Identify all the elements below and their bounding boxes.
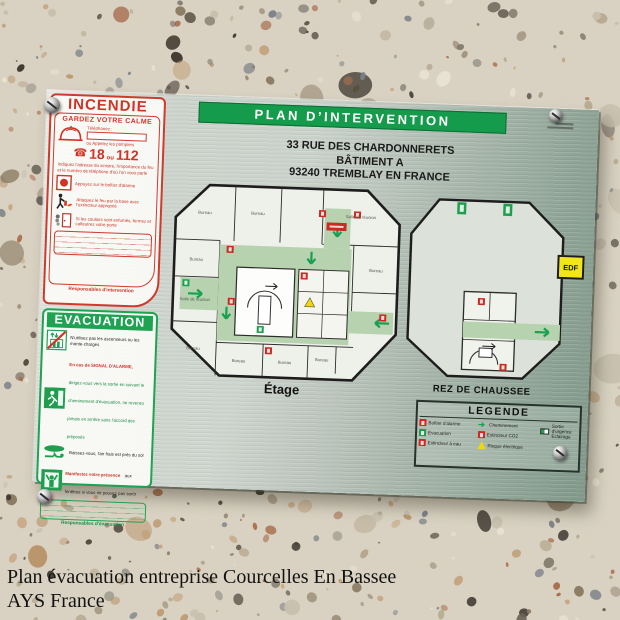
svg-text:Bureau: Bureau	[369, 268, 383, 274]
emergency-light-icon	[541, 428, 550, 434]
phone-icon: ☎	[73, 148, 87, 159]
legend-item-alarm: Boîtier d'alarme	[419, 419, 475, 428]
alarm-button-icon	[56, 175, 73, 192]
etage-alarm-label	[326, 222, 346, 231]
svg-text:Bureau: Bureau	[232, 358, 246, 364]
legend-item-emergency-light: Sortie d'urgence Éclairage	[540, 423, 577, 439]
incendie-panel: INCENDIE GARDEZ VOTRE CALME Téléphonez :…	[43, 93, 167, 308]
screw-bottom-right	[553, 446, 567, 460]
smoke-door-icon	[54, 212, 73, 230]
evacuation-panel: EVACUATION N'utilisez pas les ascenseurs…	[36, 308, 158, 488]
rdc-label: REZ DE CHAUSSEE	[402, 382, 560, 399]
number-18: 18	[89, 147, 105, 162]
svg-text:Bureau: Bureau	[278, 360, 292, 366]
responsables-evacuation-box	[40, 499, 147, 523]
legend-item-co2: Extincteur CO2	[478, 431, 538, 440]
emergency-numbers: ☎ 18 ou 112	[57, 146, 155, 164]
incendie-instructions-box: GARDEZ VOTRE CALME Téléphonez : ou Appel…	[48, 112, 160, 288]
floor-plan-rdc: REZ DE CHAUSSEE	[402, 195, 567, 399]
legend-item-electric: Risque électrique	[477, 441, 537, 451]
exit-running-man-icon	[44, 387, 66, 409]
screw-bottom-left	[37, 489, 52, 504]
photo-caption: Plan évacuation entreprise Courcelles En…	[7, 565, 396, 613]
firefighter-helmet-icon	[57, 124, 84, 145]
intervention-plate: PLAN D’INTERVENTION 33 RUE DES CHARDONNE…	[33, 90, 599, 502]
alarm-box-icon	[419, 419, 426, 426]
step-extinguisher: Attaquez le feu par la base avec l'extin…	[55, 193, 154, 214]
edf-box: EDF	[557, 255, 585, 280]
legend-item-path: ➔ Cheminement	[478, 421, 538, 430]
water-extinguisher-icon	[419, 439, 426, 446]
screw-top-left	[44, 97, 60, 113]
svg-text:Bureau: Bureau	[198, 210, 212, 216]
number-112: 112	[116, 148, 139, 163]
step-no-lift: N'utilisez pas les ascenseurs ou les mon…	[46, 329, 153, 354]
svg-text:Bureau: Bureau	[251, 211, 265, 217]
path-arrow-icon: ➔	[478, 421, 487, 428]
rdc-plan-drawing	[403, 195, 568, 385]
evacuation-icon	[419, 429, 426, 436]
step-close-door: Si les couloirs sont enfumés, fermez et …	[54, 212, 153, 233]
photo-of-evacuation-sign: PLAN D’INTERVENTION 33 RUE DES CHARDONNE…	[0, 0, 620, 620]
legend-item-water-extinguisher: Extincteur à eau	[419, 439, 475, 448]
electric-hazard-icon	[477, 441, 485, 449]
plate-title: PLAN D’INTERVENTION	[254, 107, 450, 129]
person-at-window-icon	[41, 469, 63, 491]
evacuation-title: EVACUATION	[47, 312, 153, 331]
caption-line-1: Plan évacuation entreprise Courcelles En…	[7, 565, 396, 589]
extinguisher-person-icon	[55, 193, 74, 211]
address-block: 33 RUE DES CHARDONNERETS BÂTIMENT A 9324…	[222, 137, 517, 188]
etage-room-cluster	[296, 269, 348, 339]
fire-advice-text: Indiquez l'adresse du sinistre, l'import…	[57, 162, 153, 176]
no-elevator-icon	[46, 329, 68, 351]
plate-rev-mark	[547, 122, 573, 132]
step-crawl: Baissez-vous, l'air frais est près du so…	[42, 444, 148, 463]
etage-plan-drawing: Bureau Bureau Salle de réunion Bureau Sa…	[167, 181, 404, 385]
step-alarm-signal: En cas de SIGNAL D'ALARME, dirigez-vous …	[42, 352, 151, 446]
legend-box: LEGENDE Boîtier d'alarme Évacuation Exti…	[414, 400, 582, 473]
svg-text:Bureau: Bureau	[186, 345, 200, 351]
caption-line-2: AYS France	[7, 589, 396, 613]
responsables-intervention-box	[53, 231, 152, 259]
screw-top-right	[549, 109, 562, 122]
co2-extinguisher-icon	[478, 431, 485, 438]
etage-stair-core	[235, 267, 295, 337]
crawl-under-smoke-icon	[42, 444, 67, 460]
plate-title-bar: PLAN D’INTERVENTION	[198, 102, 507, 134]
legend-item-evacuation: Évacuation	[419, 429, 475, 438]
svg-text:Bureau: Bureau	[315, 357, 329, 363]
step-alarm: Appuyez sur le boîtier d'alarme	[56, 175, 155, 195]
svg-text:Bureau: Bureau	[189, 256, 203, 262]
incendie-footer: Responsables d'intervention	[48, 286, 154, 295]
step-window: Manifestez votre présence aux fenêtres s…	[40, 461, 147, 501]
floor-plan-etage: Bureau Bureau Salle de réunion Bureau Sa…	[166, 181, 404, 401]
